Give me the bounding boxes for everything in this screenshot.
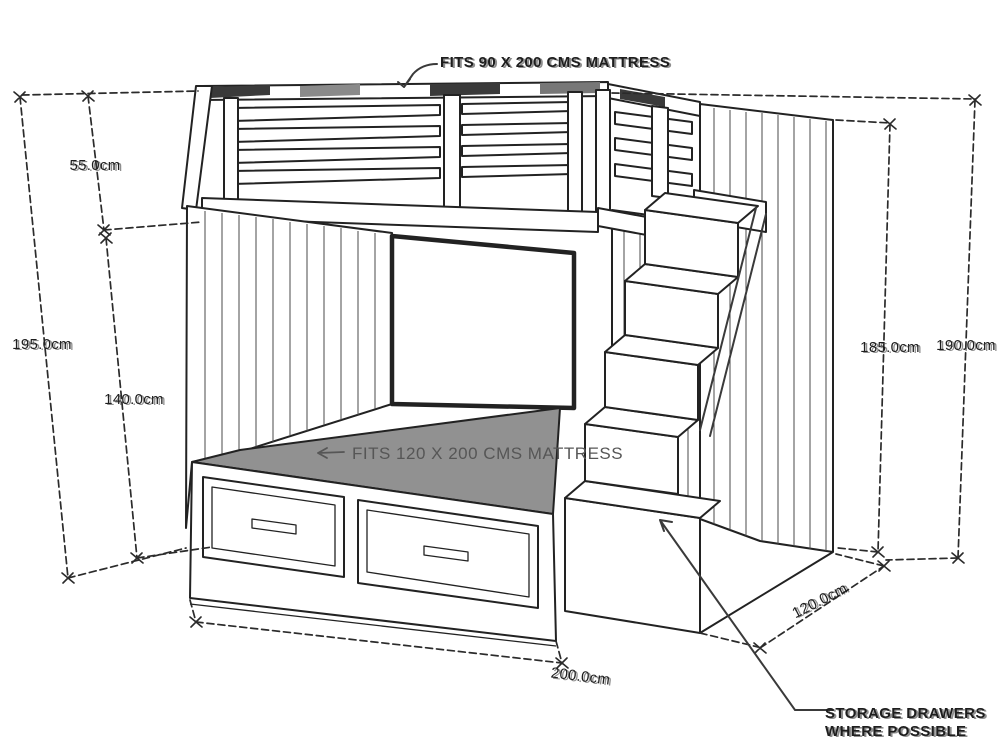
dim-label-depth: 120.0cm 120.0cm xyxy=(790,579,853,623)
guardrail-slat xyxy=(462,144,572,156)
dim-200-text: 200.0cm xyxy=(550,664,611,688)
diagram-canvas: FITS 90 X 200 CMS MATTRESS FITS 90 X 200… xyxy=(0,0,1000,750)
dim-label-under-bunk: 140.0cm 140.0cm xyxy=(104,391,166,409)
dim-label-rail-section: 55.0cm 55.0cm xyxy=(70,157,123,175)
dim-label-stair-side: 185.0cm 185.0cm xyxy=(860,339,922,357)
dim-120-text: 120.0cm xyxy=(790,580,851,622)
stair-side-height-line xyxy=(878,124,890,552)
dim-140-text: 140.0cm xyxy=(104,391,164,408)
bunk-bed-dimension-drawing: FITS 90 X 200 CMS MATTRESS FITS 90 X 200… xyxy=(0,0,1000,750)
guardrail-right-section xyxy=(462,102,572,177)
headboard-post xyxy=(182,86,212,210)
dim-label-overall-left: 195.0cm 195.0cm xyxy=(12,336,74,354)
top-mattress-label-text: FITS 90 X 200 CMS MATTRESS xyxy=(440,54,670,71)
stair-side-wall xyxy=(700,104,833,552)
dim-195-text: 195.0cm xyxy=(12,336,72,353)
storage-note-line2-text: WHERE POSSIBLE xyxy=(825,723,966,740)
bottom-mattress-label-text: FITS 120 X 200 CMS MATTRESS xyxy=(352,444,623,463)
overall-left-reference xyxy=(68,548,186,578)
stair-floor-edge xyxy=(700,552,833,633)
bunk-opening xyxy=(392,236,574,408)
guardrail-post xyxy=(224,98,238,212)
top-reference-line-left xyxy=(22,91,198,95)
overall-height-right-line xyxy=(958,100,975,558)
guardrail-slat xyxy=(462,165,572,177)
dim-185-text: 185.0cm xyxy=(860,339,920,356)
guardrail-slat xyxy=(232,147,440,163)
guardrail-slat xyxy=(232,126,440,142)
depth-references xyxy=(700,554,884,647)
guardrail-slat xyxy=(462,102,572,114)
dim-label-overall-right: 190.0cm 190.0cm xyxy=(936,337,998,355)
stair-wall-face xyxy=(700,104,833,552)
top-mattress-label: FITS 90 X 200 CMS MATTRESS FITS 90 X 200… xyxy=(440,54,672,72)
dim-label-length: 200.0cm 200.0cm xyxy=(550,664,613,689)
guardrail-slat xyxy=(462,123,572,135)
dim-190-text: 190.0cm xyxy=(936,337,996,354)
guardrail-post xyxy=(596,90,610,220)
guardrail-post xyxy=(444,95,460,215)
top-rail-shading xyxy=(430,83,500,96)
stair-side-bottom-reference xyxy=(838,548,878,552)
guardrail-post xyxy=(568,92,582,218)
storage-note-line1-text: STORAGE DRAWERS xyxy=(825,705,986,722)
dim-55-text: 55.0cm xyxy=(70,157,121,174)
top-rail-shading xyxy=(300,84,360,97)
stair-side-top-reference xyxy=(836,120,890,123)
overall-right-bottom-reference xyxy=(886,558,958,560)
stair-base-step-front xyxy=(565,498,700,633)
guardrail-end-section xyxy=(615,106,692,198)
guardrail-slat xyxy=(232,168,440,184)
guardrail-slat xyxy=(232,105,440,121)
guardrail-left-section xyxy=(232,105,440,184)
guardrail-end-post xyxy=(652,106,668,198)
storage-note: STORAGE DRAWERS STORAGE DRAWERS WHERE PO… xyxy=(825,705,988,741)
